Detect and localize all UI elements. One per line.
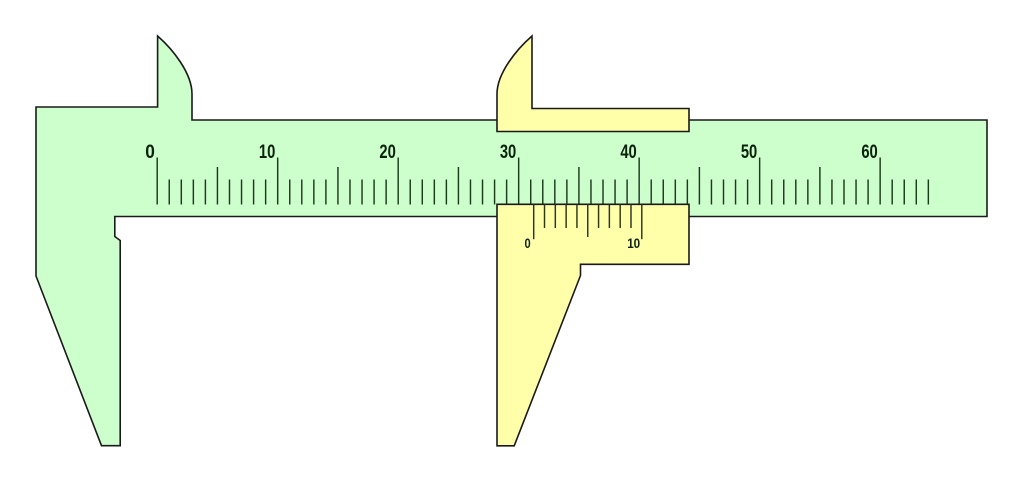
svg-text:10: 10	[627, 235, 640, 251]
svg-text:40: 40	[620, 142, 636, 163]
svg-text:0: 0	[145, 142, 155, 163]
svg-text:30: 30	[500, 142, 516, 163]
svg-text:50: 50	[741, 142, 757, 163]
svg-text:0: 0	[525, 235, 531, 251]
svg-text:10: 10	[259, 142, 275, 163]
svg-text:20: 20	[379, 142, 395, 163]
svg-text:60: 60	[861, 142, 877, 163]
